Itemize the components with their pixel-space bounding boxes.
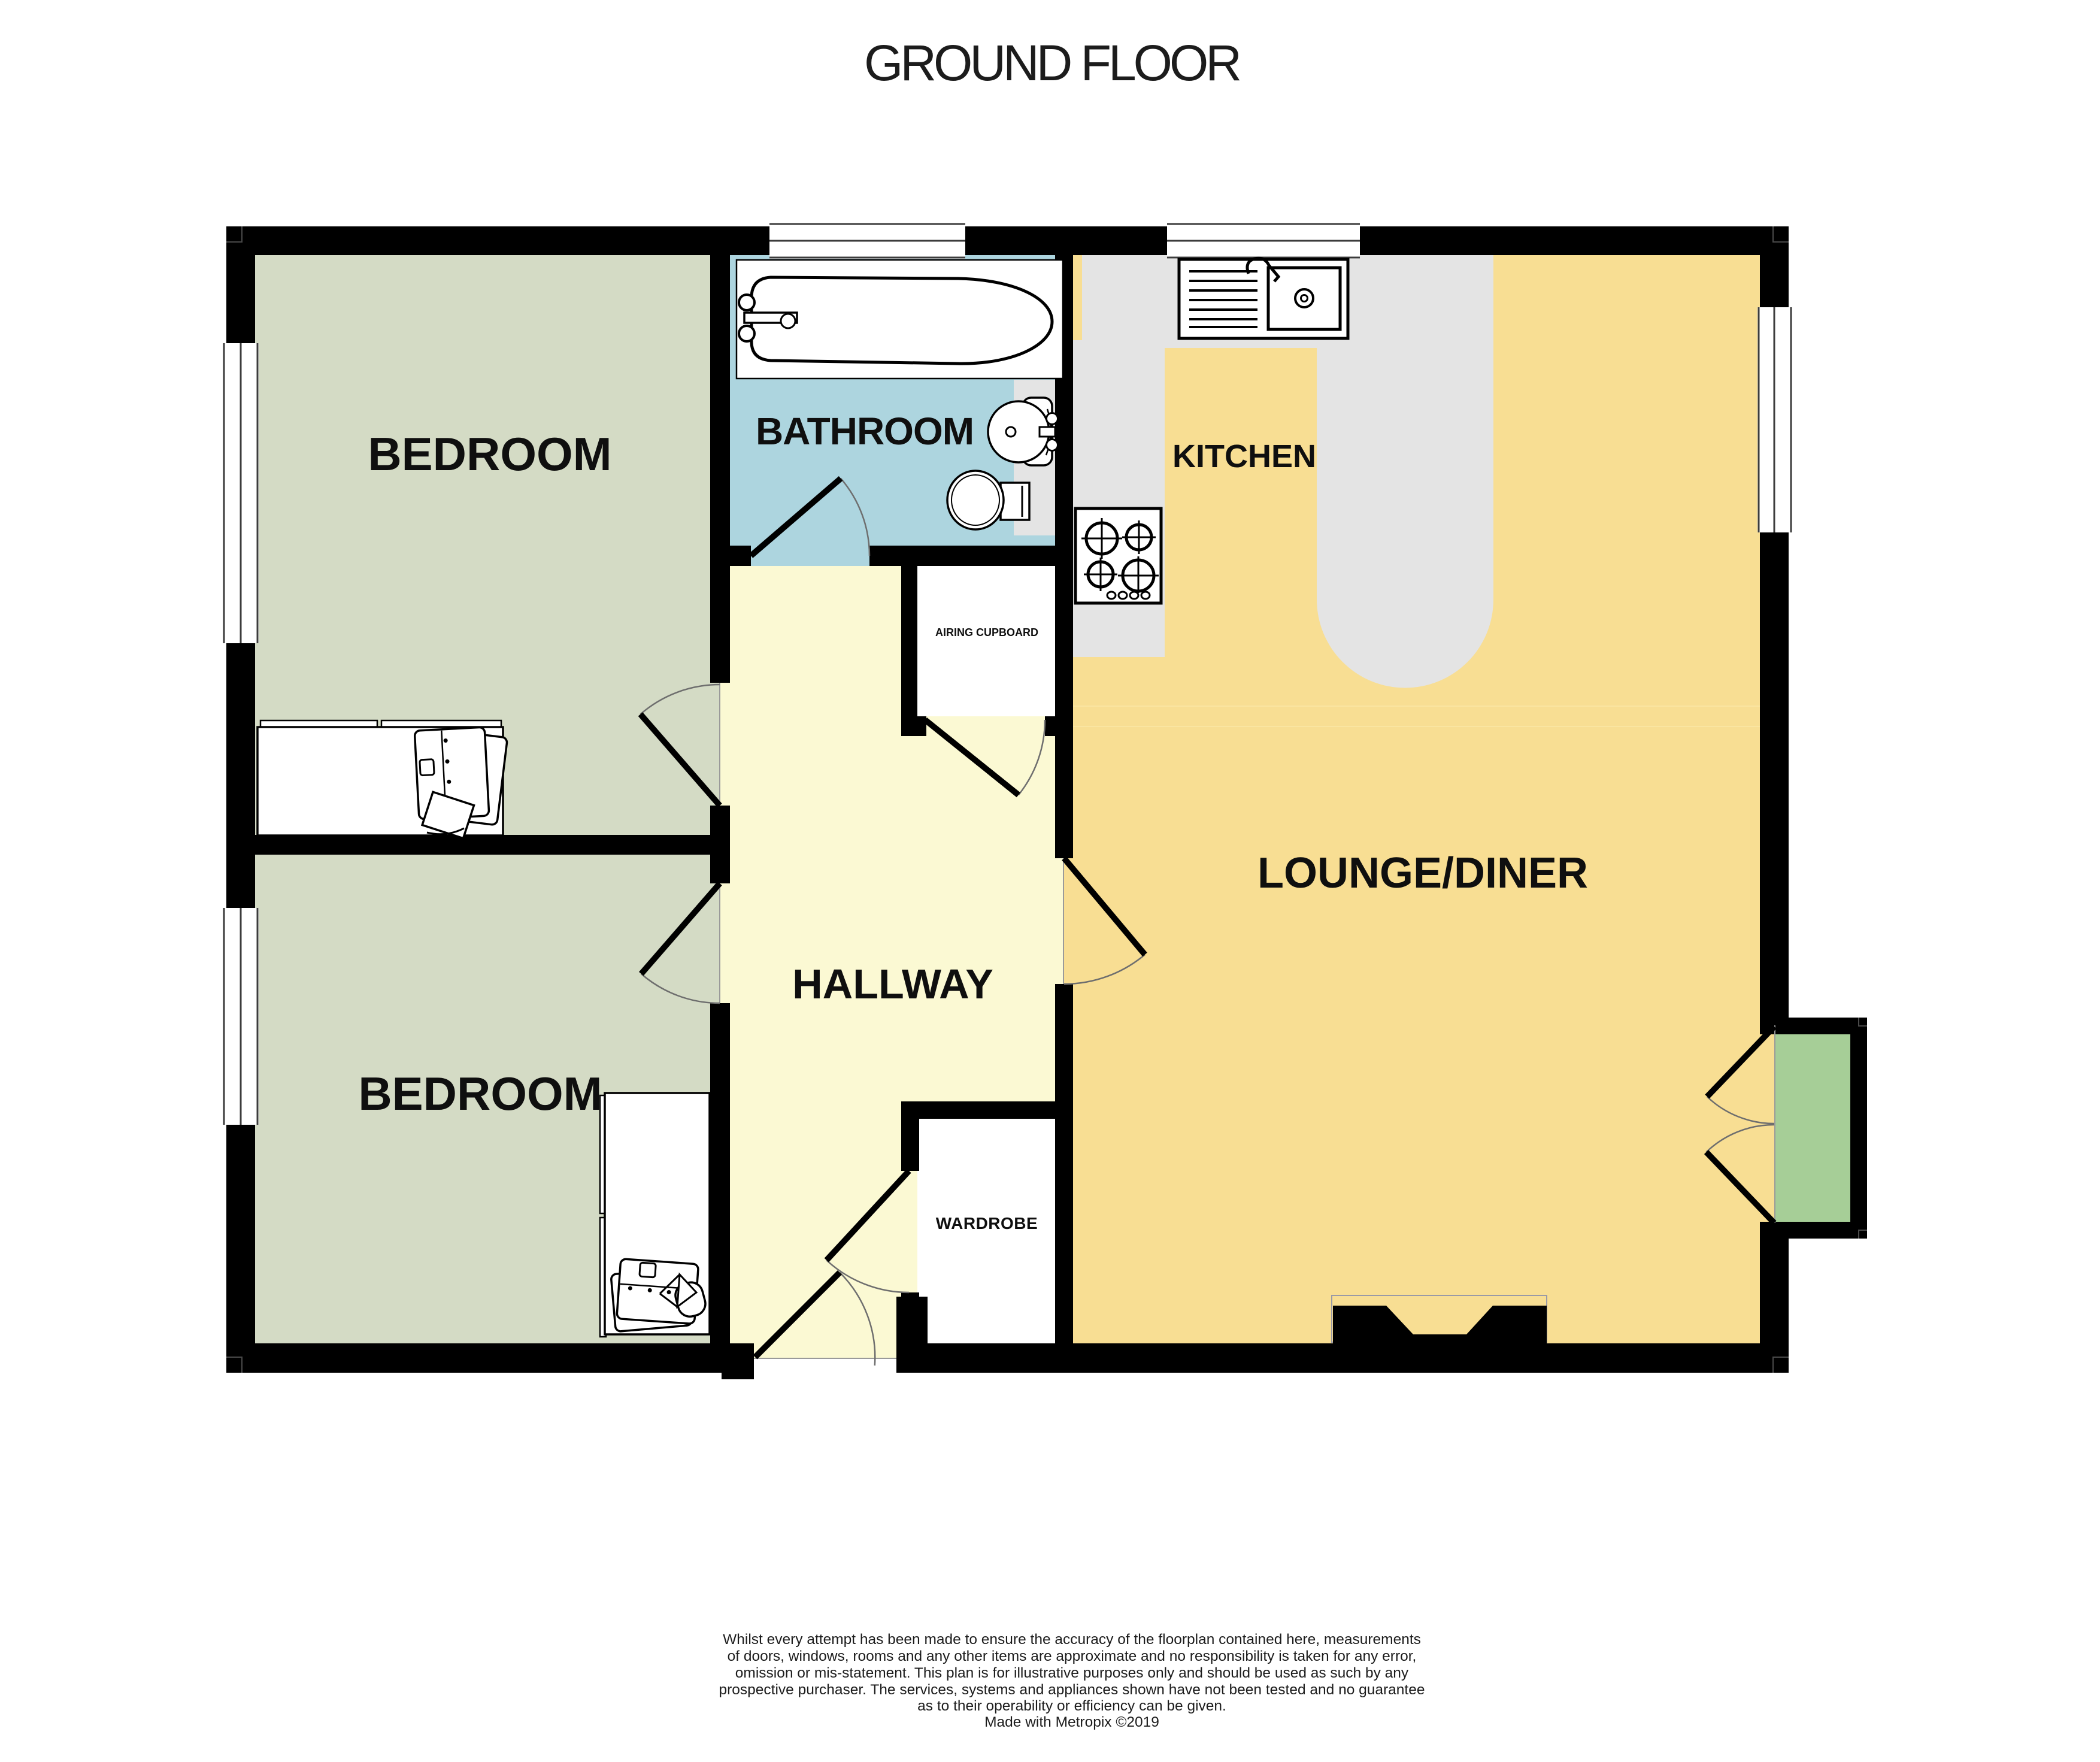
svg-text:AIRING CUPBOARD: AIRING CUPBOARD [935,626,1038,638]
svg-text:BEDROOM: BEDROOM [358,1067,602,1120]
svg-text:HALLWAY: HALLWAY [792,961,993,1007]
svg-text:omission or mis-statement. Thi: omission or mis-statement. This plan is … [735,1665,1409,1681]
svg-text:LOUNGE/DINER: LOUNGE/DINER [1257,849,1588,897]
svg-text:prospective purchaser. The ser: prospective purchaser. The services, sys… [719,1682,1425,1698]
svg-text:as to their operability or eff: as to their operability or efficiency ca… [917,1698,1226,1714]
svg-text:GROUND FLOOR: GROUND FLOOR [864,35,1240,91]
svg-text:Made with Metropix ©2019: Made with Metropix ©2019 [984,1714,1159,1730]
svg-text:KITCHEN: KITCHEN [1172,438,1316,474]
svg-text:BATHROOM: BATHROOM [756,410,974,453]
svg-text:BEDROOM: BEDROOM [368,428,611,480]
svg-text:of doors, windows, rooms and a: of doors, windows, rooms and any other i… [728,1648,1417,1664]
svg-text:Whilst every attempt has been: Whilst every attempt has been made to en… [723,1631,1421,1648]
svg-text:WARDROBE: WARDROBE [936,1214,1038,1233]
